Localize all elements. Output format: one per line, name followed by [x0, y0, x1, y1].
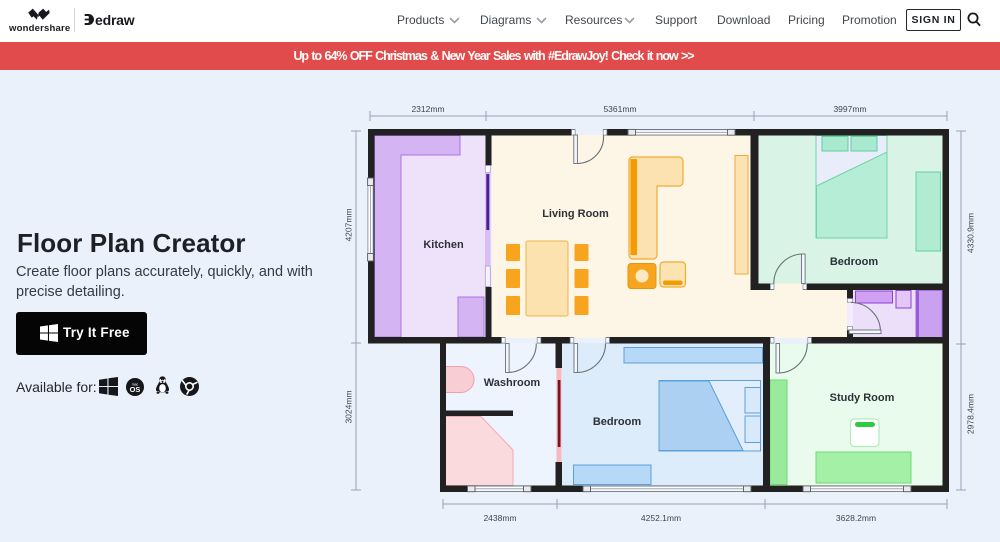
svg-text:3024mm: 3024mm [344, 390, 354, 423]
svg-text:Kitchen: Kitchen [423, 239, 464, 251]
svg-text:5361mm: 5361mm [603, 104, 636, 114]
svg-text:2978.4mm: 2978.4mm [966, 394, 976, 434]
svg-text:Bedroom: Bedroom [830, 256, 879, 268]
svg-text:Washroom: Washroom [484, 377, 541, 389]
svg-text:2312mm: 2312mm [411, 104, 444, 114]
svg-text:Bedroom: Bedroom [593, 416, 642, 428]
svg-text:2438mm: 2438mm [483, 513, 516, 523]
svg-text:4207mm: 4207mm [344, 208, 354, 241]
svg-text:Study Room: Study Room [830, 392, 895, 404]
svg-text:3997mm: 3997mm [833, 104, 866, 114]
svg-text:Living Room: Living Room [542, 208, 609, 220]
svg-text:4330.9mm: 4330.9mm [966, 213, 976, 253]
svg-text:3628.2mm: 3628.2mm [836, 513, 876, 523]
svg-text:4252.1mm: 4252.1mm [641, 513, 681, 523]
